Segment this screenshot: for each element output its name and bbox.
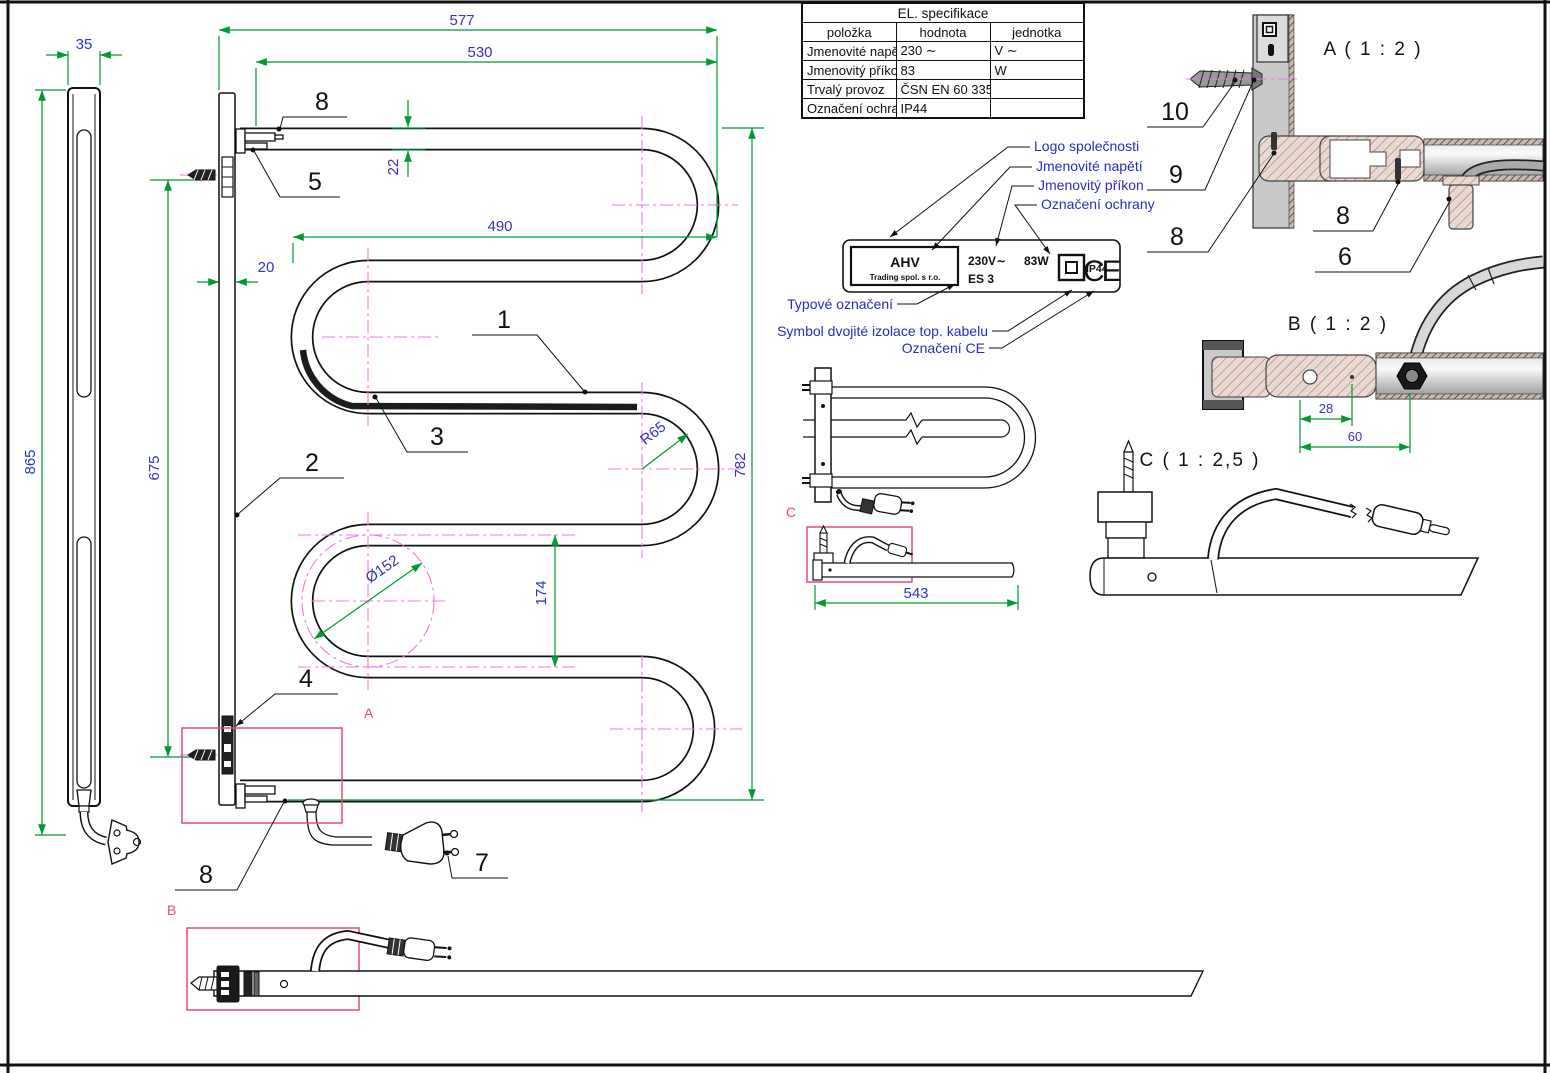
brand-sub: Trading spol. s r.o. [870, 273, 941, 282]
drawing-canvas: AHV Trading spol. s r.o. 230V∼ ES 3 83W … [0, 0, 1550, 1073]
zone-b-label: B [167, 902, 176, 918]
callout-protection: Označení ochrany [1041, 196, 1155, 212]
part-8-detail-a2: 8 [1336, 202, 1350, 230]
dim-bracket-depth: 35 [76, 36, 93, 53]
part-10: 10 [1161, 98, 1189, 126]
dim-rail-width: 20 [258, 259, 275, 276]
plate-voltage: 230V∼ [968, 254, 1006, 268]
dim-overall-height: 865 [22, 449, 39, 474]
part-1: 1 [497, 306, 511, 334]
part-7: 7 [475, 849, 489, 877]
callout-power: Jmenovitý příkon [1038, 177, 1144, 193]
spec-row-protection: Označení ochrany IP44 [802, 99, 1084, 119]
callout-voltage: Jmenovité napětí [1036, 158, 1143, 174]
spec-col-unit: jednotka [990, 23, 1084, 42]
brand-logo: AHV [890, 254, 920, 270]
spec-row-voltage: Jmenovité napětí 230 ∼ V ∼ [802, 42, 1084, 61]
part-2: 2 [305, 449, 319, 477]
electrical-spec-table: EL. specifikace položka hodnota jednotka… [801, 2, 1085, 119]
part-8-bottom: 8 [199, 861, 213, 889]
detail-a-clamp [1259, 132, 1424, 181]
view-a-title: A ( 1 : 2 ) [1323, 39, 1422, 60]
view-b-title: B ( 1 : 2 ) [1288, 314, 1388, 335]
dim-cable-length: 543 [903, 585, 928, 602]
part-3: 3 [430, 423, 444, 451]
part-8-detail-a1: 8 [1170, 223, 1184, 251]
dim-overall-width: 577 [449, 12, 474, 29]
part-9: 9 [1169, 161, 1183, 189]
plate-power: 83W [1024, 254, 1049, 268]
part-6: 6 [1338, 243, 1352, 271]
dim-hole-offset: 28 [1319, 401, 1333, 416]
dim-inner-width: 490 [487, 218, 512, 235]
dim-mount-pitch: 675 [146, 455, 163, 480]
callout-insulation: Symbol dvojité izolace top. kabelu [777, 323, 988, 339]
callout-ce: Označení CE [902, 340, 985, 356]
spec-col-item: položka [802, 23, 896, 42]
spec-row-power: Jmenovitý příkon 83 W [802, 61, 1084, 80]
dim-tube-height: 782 [732, 452, 749, 477]
view-c-title: C ( 1 : 2,5 ) [1139, 450, 1260, 471]
dim-tube-dia: 22 [385, 159, 402, 176]
plate-type: ES 3 [968, 272, 994, 286]
part-4: 4 [299, 665, 313, 693]
callout-logo: Logo společnosti [1034, 138, 1139, 154]
part-5: 5 [308, 168, 322, 196]
zone-c-label: C [786, 504, 796, 520]
technical-drawing-page: AHV Trading spol. s r.o. 230V∼ ES 3 83W … [0, 0, 1550, 1073]
spec-col-value: hodnota [896, 23, 990, 42]
spec-table-title: EL. specifikace [802, 3, 1084, 23]
dim-gland-offset: 60 [1348, 429, 1362, 444]
callout-type: Typové označení [787, 296, 893, 312]
dim-loop-pitch: 174 [533, 580, 550, 605]
part-8-top: 8 [315, 88, 329, 116]
ce-mark: CE [1083, 255, 1121, 288]
dim-tube-width: 530 [467, 44, 492, 61]
zone-a-label: A [364, 705, 374, 721]
nameplate: AHV Trading spol. s r.o. 230V∼ ES 3 83W … [843, 240, 1121, 292]
spec-row-operation: Trvalý provoz ČSN EN 60 335-1 [802, 80, 1084, 99]
